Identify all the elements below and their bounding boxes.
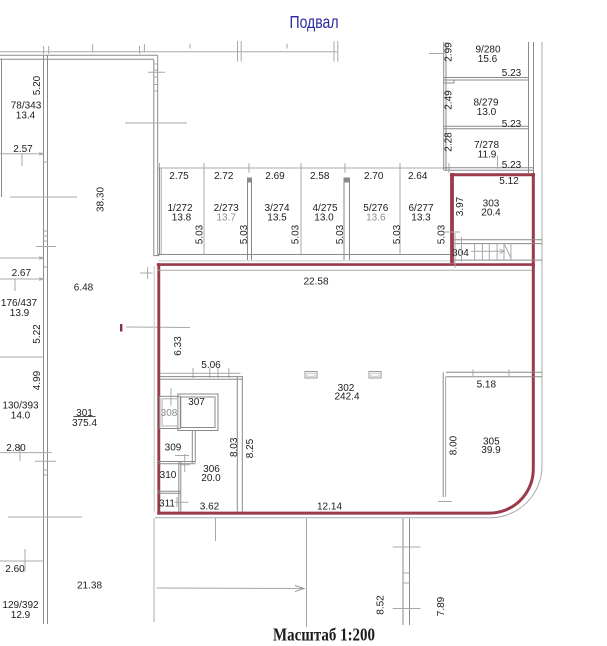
svg-text:307: 307 (188, 397, 205, 408)
svg-text:2.70: 2.70 (364, 171, 384, 182)
svg-text:5.03: 5.03 (437, 224, 448, 244)
svg-text:2.72: 2.72 (214, 171, 234, 182)
svg-text:15.6: 15.6 (478, 54, 498, 65)
svg-text:22.58: 22.58 (303, 277, 328, 288)
svg-text:Подвал: Подвал (290, 12, 339, 32)
svg-text:3.62: 3.62 (200, 502, 220, 513)
svg-text:12.9: 12.9 (11, 610, 31, 621)
svg-text:4.99: 4.99 (32, 370, 43, 390)
svg-text:13.5: 13.5 (267, 213, 287, 224)
svg-text:7.89: 7.89 (436, 596, 447, 616)
svg-text:20.0: 20.0 (201, 473, 221, 484)
svg-text:12.14: 12.14 (317, 502, 342, 513)
svg-text:13.3: 13.3 (411, 213, 431, 224)
svg-text:8.03: 8.03 (229, 437, 240, 457)
svg-text:13.0: 13.0 (314, 213, 334, 224)
svg-text:39.9: 39.9 (481, 445, 501, 456)
svg-text:310: 310 (160, 470, 177, 481)
svg-text:20.4: 20.4 (481, 208, 501, 219)
svg-text:2.60: 2.60 (5, 564, 25, 575)
svg-text:5.03: 5.03 (194, 224, 205, 244)
svg-text:308: 308 (161, 408, 178, 419)
svg-text:5.23: 5.23 (502, 119, 522, 130)
svg-text:14.0: 14.0 (11, 411, 31, 422)
svg-text:Масштаб 1:200: Масштаб 1:200 (273, 625, 375, 645)
svg-text:2.28: 2.28 (444, 132, 455, 152)
svg-text:8.25: 8.25 (245, 438, 256, 458)
svg-text:5.03: 5.03 (335, 224, 346, 244)
svg-text:5.06: 5.06 (201, 360, 221, 371)
svg-text:13.9: 13.9 (10, 308, 30, 319)
svg-text:5.23: 5.23 (502, 160, 522, 171)
svg-text:375.4: 375.4 (72, 418, 97, 429)
svg-text:2.80: 2.80 (6, 443, 26, 454)
svg-text:5.20: 5.20 (32, 75, 43, 95)
svg-text:5.23: 5.23 (502, 68, 522, 79)
svg-text:13.6: 13.6 (366, 213, 386, 224)
svg-text:242.4: 242.4 (334, 392, 359, 403)
svg-text:5.03: 5.03 (239, 224, 250, 244)
svg-text:13.4: 13.4 (16, 111, 36, 122)
svg-text:309: 309 (165, 443, 182, 454)
svg-text:5.12: 5.12 (499, 176, 519, 187)
svg-text:5.18: 5.18 (477, 380, 497, 391)
svg-text:311: 311 (159, 499, 175, 510)
svg-text:2.67: 2.67 (12, 268, 32, 279)
svg-text:13.0: 13.0 (477, 107, 497, 118)
svg-text:2.64: 2.64 (408, 171, 428, 182)
svg-text:13.7: 13.7 (216, 213, 236, 224)
svg-text:2.58: 2.58 (310, 171, 330, 182)
svg-text:2.99: 2.99 (444, 42, 455, 62)
svg-text:8.52: 8.52 (376, 595, 387, 615)
svg-text:2.49: 2.49 (444, 90, 455, 110)
svg-text:13.8: 13.8 (172, 213, 192, 224)
svg-text:5.22: 5.22 (32, 324, 43, 344)
svg-text:3.97: 3.97 (455, 196, 466, 216)
svg-text:11.9: 11.9 (478, 150, 497, 161)
svg-text:2.69: 2.69 (265, 171, 285, 182)
svg-text:38.30: 38.30 (95, 187, 106, 212)
svg-text:2.57: 2.57 (13, 144, 33, 155)
svg-text:8.00: 8.00 (448, 435, 459, 455)
svg-text:6.48: 6.48 (74, 283, 94, 294)
svg-text:2.75: 2.75 (169, 171, 189, 182)
svg-text:5.03: 5.03 (392, 224, 403, 244)
svg-text:21.38: 21.38 (77, 581, 102, 592)
svg-text:5.03: 5.03 (291, 224, 302, 244)
svg-text:6.33: 6.33 (173, 336, 184, 356)
